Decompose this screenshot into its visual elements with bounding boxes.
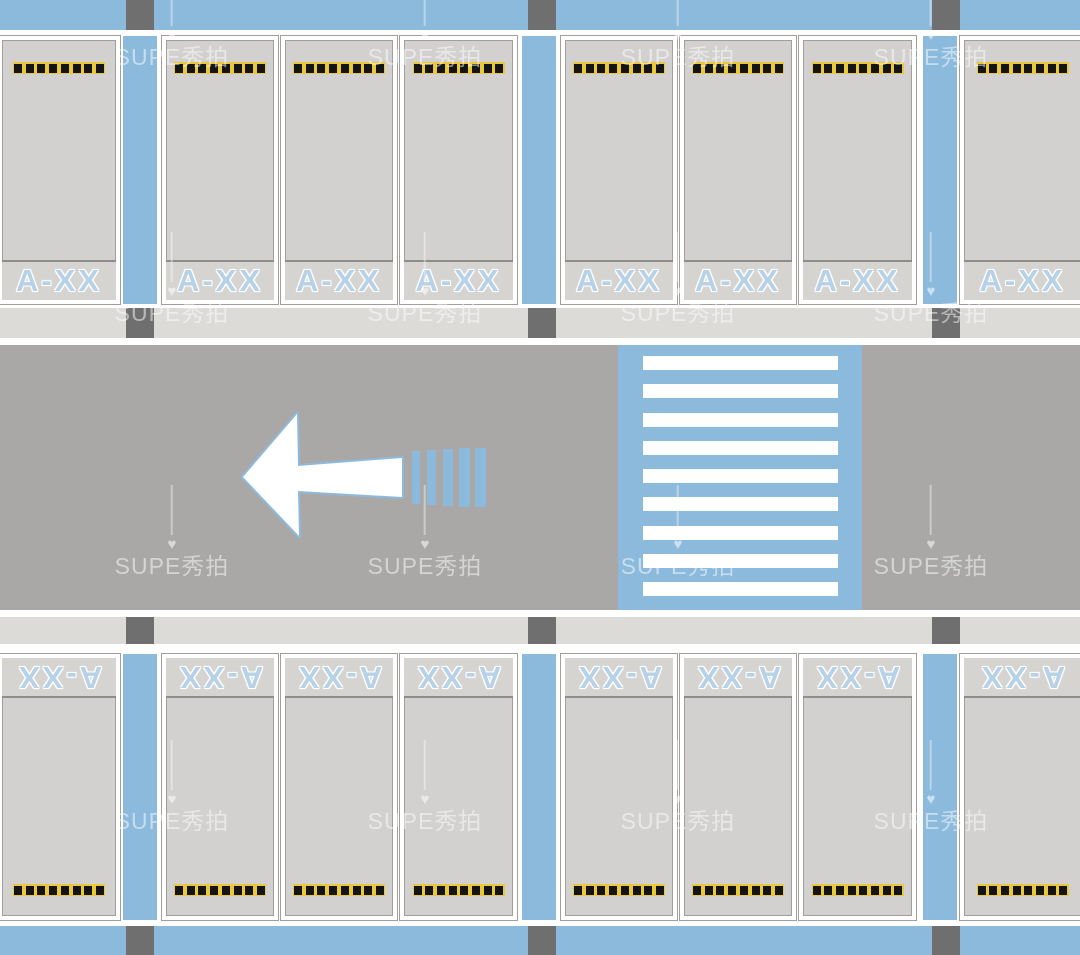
- parking-stall: A-XX: [561, 36, 677, 304]
- stall-label-band: A-XX: [285, 658, 393, 698]
- wheel-stop-hazard-strip: [13, 884, 105, 896]
- stall-label-band: A-XX: [2, 658, 116, 698]
- crosswalk: [618, 345, 862, 610]
- wheel-stop-hazard-strip: [977, 884, 1069, 896]
- crosswalk-stripe: [643, 356, 838, 370]
- crosswalk-stripe: [643, 554, 838, 568]
- crosswalk-stripes: [643, 356, 838, 596]
- stall-label-band: A-XX: [803, 658, 912, 698]
- stall-label-band: A-XX: [964, 260, 1080, 300]
- crosswalk-stripe: [643, 469, 838, 483]
- stall-label: A-XX: [177, 659, 263, 695]
- wheel-stop-hazard-strip: [413, 62, 505, 74]
- parking-stall: A-XX: [162, 654, 278, 920]
- crosswalk-stripe: [643, 582, 838, 596]
- parking-stall: A-XX: [960, 36, 1080, 304]
- wheel-stop-hazard-strip: [812, 884, 904, 896]
- parking-lot-diagram: A-XX A-XX A-XX A-XX A-XX A-XX A-XX A-XX: [0, 0, 1080, 955]
- stall-label: A-XX: [576, 263, 662, 299]
- pillar-aisle-strip: [522, 36, 556, 304]
- crosswalk-stripe: [643, 384, 838, 398]
- stall-label: A-XX: [16, 659, 102, 695]
- parking-stall: A-XX: [162, 36, 278, 304]
- parking-stall: A-XX: [281, 654, 397, 920]
- wheel-stop-hazard-strip: [293, 884, 385, 896]
- crosswalk-stripe: [643, 413, 838, 427]
- pillar-aisle-strip: [923, 654, 957, 920]
- stall-label-band: A-XX: [285, 260, 393, 300]
- roadway: [0, 345, 1080, 610]
- stall-label-band: A-XX: [2, 260, 116, 300]
- stall-label-band: A-XX: [166, 658, 274, 698]
- pillar-aisle-strip: [123, 654, 157, 920]
- arrow-tail-dashes: [412, 448, 486, 507]
- stall-label-band: A-XX: [684, 260, 792, 300]
- crosswalk-stripe: [643, 497, 838, 511]
- parking-stall: A-XX: [799, 654, 916, 920]
- wheel-stop-hazard-strip: [573, 62, 665, 74]
- crosswalk-stripe: [643, 526, 838, 540]
- wheel-stop-hazard-strip: [413, 884, 505, 896]
- column: [932, 308, 960, 338]
- stall-label: A-XX: [415, 659, 501, 695]
- pillar-aisle-strip: [123, 36, 157, 304]
- column: [528, 926, 556, 955]
- stall-label-band: A-XX: [964, 658, 1080, 698]
- parking-stall: A-XX: [281, 36, 397, 304]
- stall-label: A-XX: [695, 659, 781, 695]
- parking-stall: A-XX: [680, 654, 796, 920]
- left-arrow: [243, 414, 402, 536]
- stall-label: A-XX: [415, 263, 501, 299]
- column: [528, 0, 556, 30]
- stall-label: A-XX: [296, 263, 382, 299]
- parking-stall: A-XX: [561, 654, 677, 920]
- column: [528, 308, 556, 338]
- stall-label-band: A-XX: [565, 658, 673, 698]
- stall-label: A-XX: [177, 263, 263, 299]
- wheel-stop-hazard-strip: [573, 884, 665, 896]
- wheel-stop-hazard-strip: [13, 62, 105, 74]
- wheel-stop-hazard-strip: [692, 884, 784, 896]
- stall-label: A-XX: [814, 659, 900, 695]
- wheel-stop-hazard-strip: [174, 62, 266, 74]
- stall-label: A-XX: [979, 659, 1065, 695]
- stall-label-band: A-XX: [565, 260, 673, 300]
- stall-label: A-XX: [695, 263, 781, 299]
- wheel-stop-hazard-strip: [812, 62, 904, 74]
- stall-label-band: A-XX: [404, 260, 513, 300]
- wheel-stop-hazard-strip: [692, 62, 784, 74]
- stall-label-band: A-XX: [684, 658, 792, 698]
- stall-label: A-XX: [16, 263, 102, 299]
- parking-stall: A-XX: [400, 36, 517, 304]
- stall-label-band: A-XX: [404, 658, 513, 698]
- column: [126, 0, 154, 30]
- column: [932, 926, 960, 955]
- parking-stall: A-XX: [960, 654, 1080, 920]
- parking-stall: A-XX: [680, 36, 796, 304]
- parking-stall: A-XX: [0, 36, 120, 304]
- crosswalk-stripe: [643, 441, 838, 455]
- stall-label: A-XX: [576, 659, 662, 695]
- wheel-stop-hazard-strip: [174, 884, 266, 896]
- column: [126, 308, 154, 338]
- stall-label: A-XX: [979, 263, 1065, 299]
- stall-label-band: A-XX: [166, 260, 274, 300]
- left-arrow-marking: [0, 345, 1080, 610]
- column: [932, 0, 960, 30]
- pillar-aisle-strip: [522, 654, 556, 920]
- parking-stall: A-XX: [799, 36, 916, 304]
- stall-label-band: A-XX: [803, 260, 912, 300]
- stall-label: A-XX: [814, 263, 900, 299]
- pillar-aisle-strip: [923, 36, 957, 304]
- stall-label: A-XX: [296, 659, 382, 695]
- wheel-stop-hazard-strip: [977, 62, 1069, 74]
- column: [126, 926, 154, 955]
- parking-stall: A-XX: [400, 654, 517, 920]
- wheel-stop-hazard-strip: [293, 62, 385, 74]
- parking-stall: A-XX: [0, 654, 120, 920]
